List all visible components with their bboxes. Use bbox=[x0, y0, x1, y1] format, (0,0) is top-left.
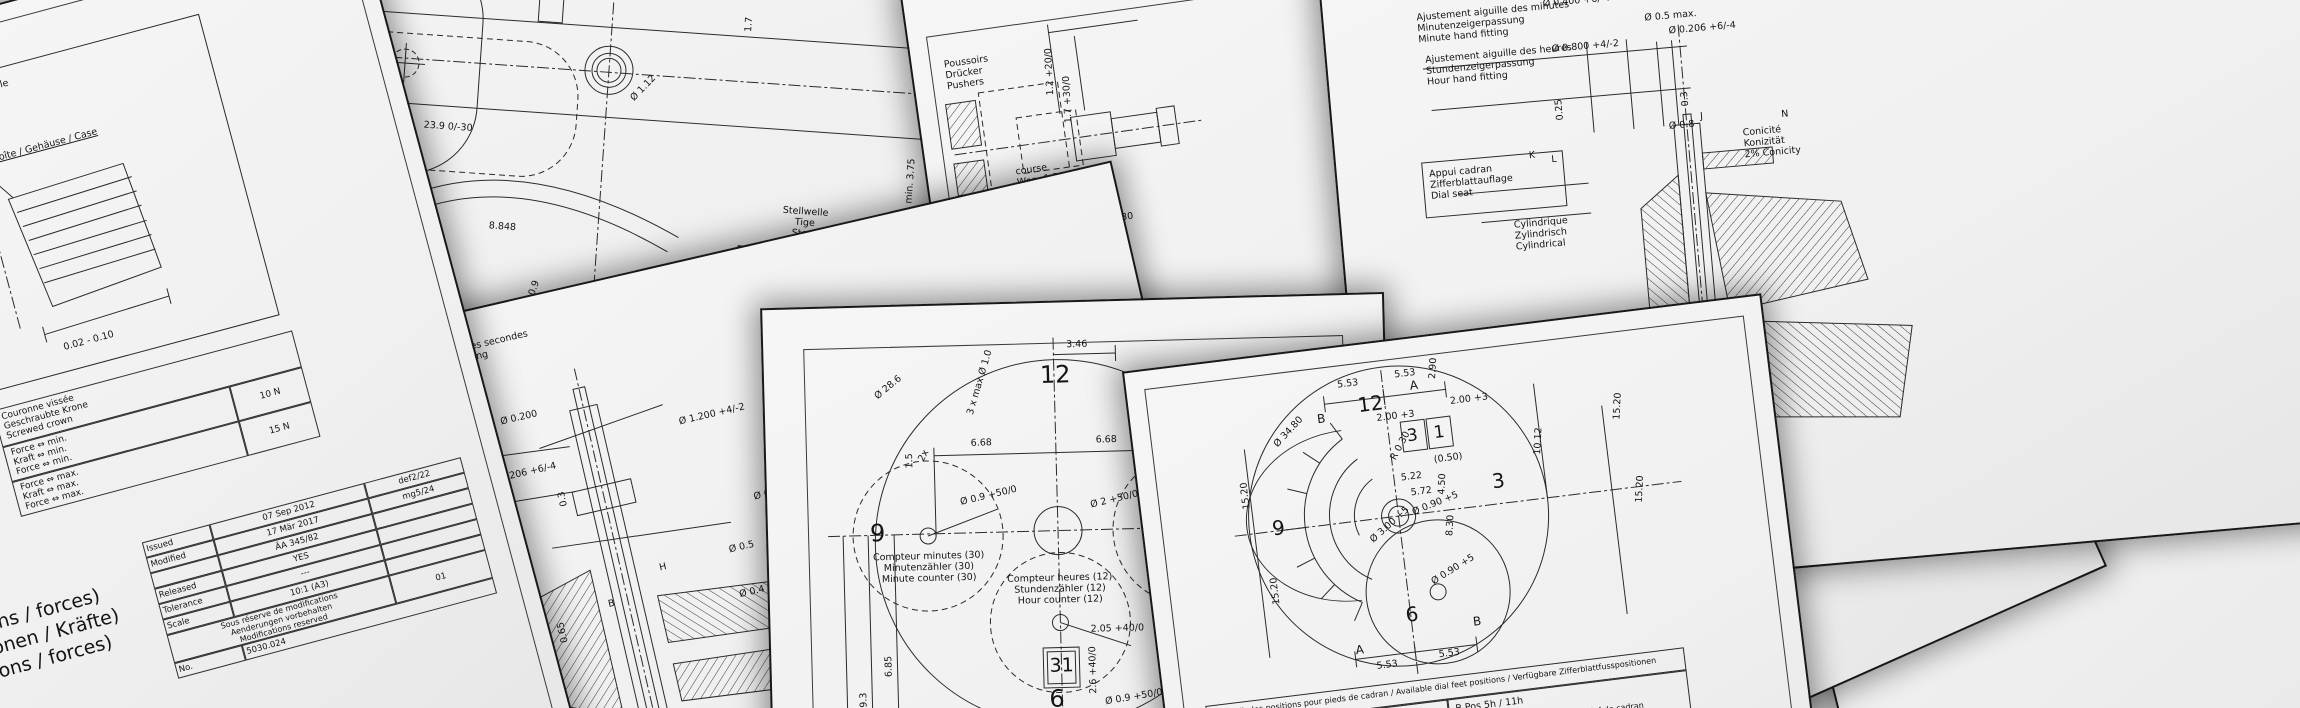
hf-n: N bbox=[1781, 108, 1789, 120]
stem-dim-17: 1.7 bbox=[743, 17, 755, 33]
retro-a-top: A bbox=[1409, 378, 1419, 393]
stem-dim-8848: 8.848 bbox=[488, 220, 516, 233]
dial-a-dim-15: 1.5 bbox=[904, 453, 916, 468]
retro-a-bottom: A bbox=[1355, 642, 1365, 657]
hf-cylindrique: Cylindrique Zylindrisch Cylindrical bbox=[1513, 215, 1570, 253]
hf-dim-03: 0.3 bbox=[1679, 91, 1691, 107]
retro-date-digit-1: 1 bbox=[1433, 422, 1446, 443]
hf-dim-025: 0.25 bbox=[1553, 99, 1566, 121]
retro-dim-290: 2.90 bbox=[1427, 357, 1439, 379]
retro-9: 9 bbox=[1271, 515, 1287, 540]
hf-dia-08: Ø 0.8 bbox=[1668, 119, 1694, 132]
hf-j: J bbox=[1700, 111, 1704, 122]
retrograde-drawing bbox=[1124, 295, 1840, 708]
retro-6: 6 bbox=[1404, 601, 1420, 626]
pusher-dim-12: 1.2 +20/0 bbox=[1043, 48, 1057, 96]
hf-appui-label: Appui cadran Zifferblattauflage Dial sea… bbox=[1429, 162, 1515, 203]
dial-a-9: 9 bbox=[870, 519, 886, 547]
dial-a-dim-26: 2.6 +40/0 bbox=[1087, 646, 1099, 694]
retro-dim-450: 4.50 bbox=[1436, 473, 1448, 495]
dial-a-dim-93: 9.3 bbox=[858, 692, 870, 707]
dial-a-dim-668a: 6.68 bbox=[971, 437, 992, 449]
dial-a-dim-668b: 6.68 bbox=[1096, 434, 1117, 446]
hf-conicity: Conicité Konizität 2% Conicity bbox=[1742, 123, 1801, 161]
dial-a-dim-346: 3.46 bbox=[1066, 339, 1087, 351]
retro-dim-1520-r2: 15.20 bbox=[1634, 475, 1647, 503]
dial-a-dim-205: 2.05 +40/0 bbox=[1090, 622, 1144, 635]
technical-drawings-collage: Pile Batterie (384) Battery Ø 7.90 x 3.6… bbox=[0, 0, 2300, 708]
retro-3: 3 bbox=[1491, 468, 1507, 493]
retro-dim-1520-r1: 15.20 bbox=[1611, 392, 1624, 420]
retro-dim-1012: 10.12 bbox=[1532, 427, 1545, 455]
retro-b-top: B bbox=[1316, 411, 1326, 426]
pushers-title: Poussoirs Drücker Pushers bbox=[943, 53, 992, 92]
dial-a-12: 12 bbox=[1040, 360, 1071, 389]
dial-a-hour-counter: Compteur heures (12) Stundenzähler (12) … bbox=[982, 571, 1138, 609]
retro-dim-830: 8.30 bbox=[1444, 515, 1456, 537]
retro-b-bottom: B bbox=[1472, 614, 1482, 629]
dial-a-6: 6 bbox=[1049, 684, 1065, 708]
dial-a-dim-685: 6.85 bbox=[883, 656, 895, 677]
dial-a-date: 31 bbox=[1049, 654, 1074, 677]
